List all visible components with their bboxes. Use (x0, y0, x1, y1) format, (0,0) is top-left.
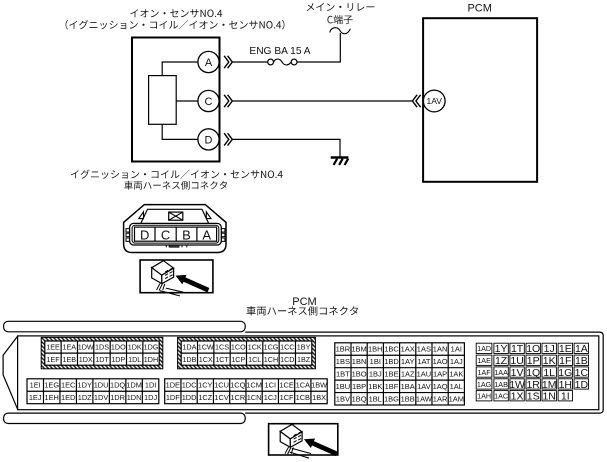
svg-text:1AL: 1AL (450, 382, 463, 391)
svg-text:1CF: 1CF (280, 393, 294, 402)
svg-text:1AV: 1AV (426, 96, 442, 106)
svg-text:1DQ: 1DQ (110, 381, 125, 390)
svg-text:1CW: 1CW (198, 343, 214, 352)
svg-text:1B: 1B (575, 355, 588, 367)
svg-text:1AM: 1AM (449, 394, 464, 403)
svg-text:1R: 1R (526, 379, 540, 391)
svg-text:1CZ: 1CZ (198, 393, 212, 402)
svg-text:1AO: 1AO (433, 357, 448, 366)
svg-text:1DR: 1DR (110, 393, 125, 402)
svg-text:1P: 1P (527, 355, 540, 367)
svg-text:1BQ: 1BQ (352, 394, 367, 403)
svg-text:1BL: 1BL (369, 394, 382, 403)
svg-text:1BY: 1BY (297, 343, 311, 352)
svg-text:1AK: 1AK (449, 370, 463, 379)
svg-text:1AE: 1AE (477, 356, 491, 365)
svg-text:1BJ: 1BJ (369, 370, 382, 379)
svg-text:1CU: 1CU (214, 381, 229, 390)
svg-text:1AY: 1AY (401, 357, 415, 366)
svg-text:1DB: 1DB (182, 355, 196, 364)
svg-text:1DU: 1DU (94, 381, 109, 390)
svg-text:1CD: 1CD (280, 355, 294, 364)
svg-text:1DF: 1DF (166, 393, 180, 402)
svg-text:1DO: 1DO (111, 343, 126, 352)
svg-text:1C: 1C (575, 367, 589, 379)
svg-text:1Q: 1Q (526, 367, 540, 379)
svg-text:1BW: 1BW (311, 381, 327, 390)
svg-text:1AU: 1AU (417, 370, 432, 379)
svg-text:1EG: 1EG (44, 381, 59, 390)
svg-text:1EH: 1EH (45, 393, 59, 402)
svg-text:1DJ: 1DJ (144, 393, 157, 402)
svg-text:1EC: 1EC (61, 381, 76, 390)
svg-text:1CG: 1CG (264, 343, 279, 352)
svg-text:1AB: 1AB (494, 380, 508, 389)
svg-text:1CT: 1CT (215, 355, 229, 364)
svg-text:1CK: 1CK (248, 343, 262, 352)
svg-text:1F: 1F (559, 355, 571, 367)
svg-text:1CA: 1CA (296, 381, 310, 390)
svg-text:1CM: 1CM (246, 381, 262, 390)
svg-text:1BO: 1BO (352, 370, 367, 379)
svg-text:1CR: 1CR (230, 393, 245, 402)
svg-text:1DE: 1DE (166, 381, 180, 390)
svg-text:1Z: 1Z (495, 355, 508, 367)
svg-text:1BZ: 1BZ (297, 355, 311, 364)
svg-text:1BA: 1BA (401, 382, 415, 391)
svg-text:PCM: PCM (292, 296, 316, 308)
svg-text:1DN: 1DN (127, 393, 142, 402)
svg-text:1BF: 1BF (385, 382, 399, 391)
svg-text:1AQ: 1AQ (433, 382, 448, 391)
svg-text:1CL: 1CL (248, 355, 261, 364)
svg-text:1CQ: 1CQ (230, 381, 245, 390)
svg-text:1E: 1E (559, 343, 572, 355)
svg-text:1AS: 1AS (417, 345, 431, 354)
svg-text:1BE: 1BE (384, 370, 398, 379)
svg-text:1CE: 1CE (279, 381, 293, 390)
svg-text:1BD: 1BD (384, 357, 399, 366)
svg-text:1D: 1D (575, 379, 589, 391)
svg-text:C: C (161, 228, 170, 243)
svg-text:1AP: 1AP (433, 370, 447, 379)
svg-text:1DG: 1DG (144, 343, 159, 352)
svg-text:1EI: 1EI (30, 381, 41, 390)
svg-text:1BT: 1BT (336, 370, 350, 379)
svg-text:1DY: 1DY (78, 381, 92, 390)
svg-text:1BC: 1BC (384, 345, 399, 354)
svg-text:D: D (140, 228, 149, 243)
svg-text:1BH: 1BH (368, 345, 383, 354)
svg-text:1BK: 1BK (368, 382, 382, 391)
svg-text:1S: 1S (527, 391, 540, 403)
svg-text:1AR: 1AR (433, 394, 448, 403)
svg-text:1BV: 1BV (336, 394, 350, 403)
svg-text:1W: 1W (509, 379, 525, 391)
svg-text:1AA: 1AA (494, 368, 508, 377)
svg-text:B: B (182, 228, 191, 243)
svg-text:1DX: 1DX (79, 355, 93, 364)
svg-text:1AT: 1AT (417, 357, 431, 366)
svg-text:1AG: 1AG (477, 380, 492, 389)
svg-text:1U: 1U (510, 355, 523, 367)
svg-text:1CC: 1CC (280, 343, 294, 352)
svg-text:1DW: 1DW (78, 343, 94, 352)
svg-text:1EB: 1EB (63, 355, 77, 364)
svg-text:D: D (205, 134, 213, 146)
svg-text:1DA: 1DA (182, 343, 196, 352)
svg-text:1V: 1V (511, 367, 524, 379)
svg-text:1CJ: 1CJ (264, 393, 277, 402)
svg-text:1AD: 1AD (477, 344, 491, 353)
svg-text:A: A (205, 57, 213, 69)
svg-text:1CV: 1CV (214, 393, 228, 402)
svg-text:1BR: 1BR (336, 345, 351, 354)
svg-text:1EJ: 1EJ (29, 393, 42, 402)
svg-text:1T: 1T (511, 343, 524, 355)
svg-text:1DS: 1DS (95, 343, 109, 352)
svg-text:1AW: 1AW (416, 394, 433, 403)
svg-text:1DM: 1DM (126, 381, 142, 390)
svg-text:1AC: 1AC (494, 392, 508, 401)
svg-text:1AH: 1AH (477, 392, 491, 401)
svg-text:1J: 1J (544, 343, 555, 355)
svg-text:1AJ: 1AJ (450, 357, 463, 366)
svg-text:1CP: 1CP (231, 355, 245, 364)
svg-text:1CY: 1CY (198, 381, 212, 390)
svg-text:1CH: 1CH (264, 355, 278, 364)
svg-text:1CI: 1CI (265, 381, 277, 390)
svg-text:1DT: 1DT (95, 355, 109, 364)
svg-text:1BS: 1BS (336, 357, 350, 366)
svg-text:1EF: 1EF (46, 355, 60, 364)
svg-text:1DP: 1DP (111, 355, 125, 364)
svg-text:1EA: 1EA (63, 343, 77, 352)
svg-text:1BP: 1BP (352, 382, 366, 391)
svg-text:1DV: 1DV (94, 393, 108, 402)
svg-text:1DK: 1DK (128, 343, 142, 352)
svg-text:1G: 1G (558, 367, 572, 379)
svg-text:1DZ: 1DZ (78, 393, 92, 402)
svg-text:1BM: 1BM (351, 345, 366, 354)
svg-text:1ED: 1ED (61, 393, 75, 402)
svg-text:1AI: 1AI (451, 345, 462, 354)
svg-text:A: A (202, 228, 211, 243)
svg-text:1AZ: 1AZ (401, 370, 415, 379)
svg-text:1AV: 1AV (417, 382, 431, 391)
svg-text:1CS: 1CS (215, 343, 229, 352)
svg-text:1CB: 1CB (296, 393, 310, 402)
svg-text:1BI: 1BI (370, 357, 381, 366)
svg-text:1DH: 1DH (144, 355, 158, 364)
svg-text:1EE: 1EE (46, 343, 60, 352)
svg-text:1CN: 1CN (247, 393, 262, 402)
svg-text:1AX: 1AX (401, 345, 415, 354)
svg-text:1H: 1H (559, 379, 572, 391)
svg-text:1DD: 1DD (182, 393, 197, 402)
svg-text:PCM: PCM (467, 3, 491, 15)
svg-text:ENG BA 15 A: ENG BA 15 A (249, 46, 310, 57)
svg-text:1Y: 1Y (495, 343, 508, 355)
svg-text:1I: 1I (561, 391, 570, 403)
svg-text:1AN: 1AN (433, 345, 448, 354)
svg-text:1N: 1N (542, 391, 555, 403)
svg-text:1K: 1K (543, 355, 556, 367)
svg-text:1DI: 1DI (145, 381, 157, 390)
svg-text:1DL: 1DL (128, 355, 141, 364)
svg-text:1BG: 1BG (384, 394, 399, 403)
svg-text:1X: 1X (511, 391, 524, 403)
svg-text:1AF: 1AF (478, 368, 492, 377)
svg-text:1BU: 1BU (336, 382, 351, 391)
svg-text:1CO: 1CO (231, 343, 246, 352)
svg-text:1M: 1M (542, 379, 557, 391)
svg-text:1CX: 1CX (199, 355, 213, 364)
svg-text:1BN: 1BN (352, 357, 367, 366)
svg-text:1L: 1L (543, 367, 555, 379)
svg-text:1O: 1O (526, 343, 540, 355)
svg-text:1BX: 1BX (312, 393, 326, 402)
svg-text:1A: 1A (575, 343, 588, 355)
svg-text:1BB: 1BB (401, 394, 415, 403)
svg-text:C: C (205, 96, 213, 108)
svg-text:1DC: 1DC (182, 381, 197, 390)
